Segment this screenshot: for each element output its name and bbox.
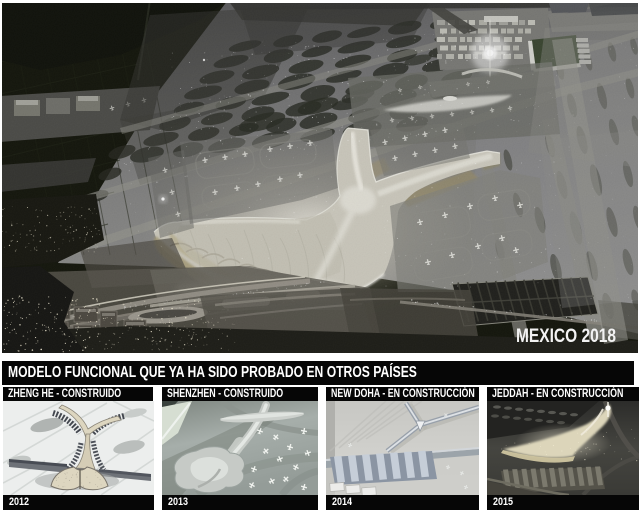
svg-text:MEXICO 2018: MEXICO 2018 (516, 326, 616, 347)
